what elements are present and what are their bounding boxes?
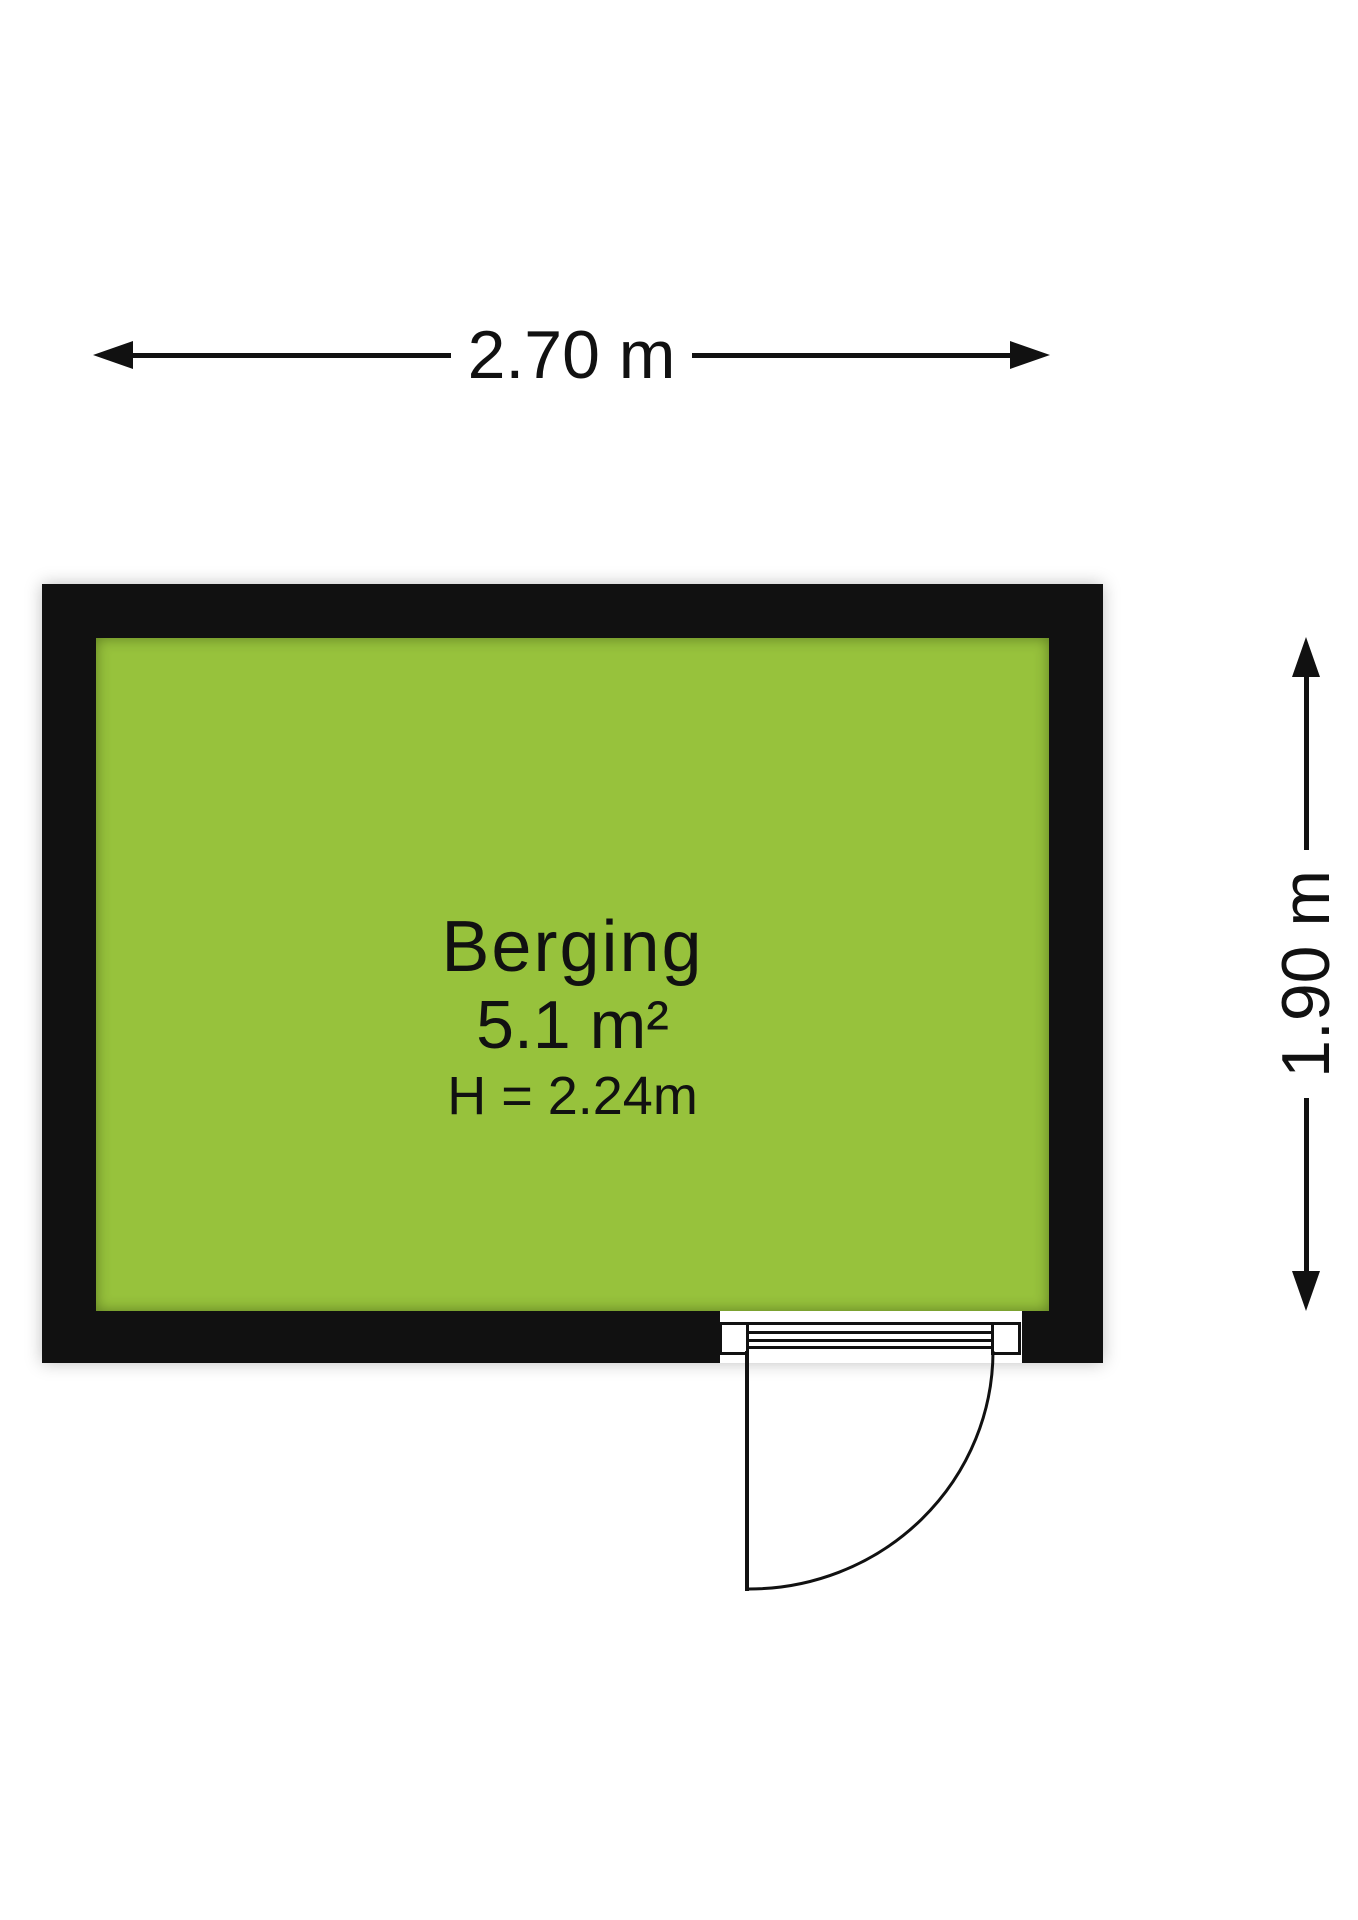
room-area: 5.1 m²	[96, 991, 1049, 1059]
door-threshold-line	[748, 1331, 994, 1334]
dimension-line-right	[692, 353, 1010, 358]
dimension-line-left	[133, 353, 451, 358]
door-threshold-line	[748, 1339, 994, 1342]
floorplan-canvas: 2.70 m Berging 5.1 m² H = 2.24m 1.90 m	[0, 0, 1358, 1920]
dimension-line-top	[1304, 677, 1309, 850]
door-threshold	[721, 1322, 1018, 1349]
arrow-right-icon	[1010, 341, 1050, 369]
width-dimension: 2.70 m	[93, 315, 1050, 395]
arrow-down-icon	[1292, 1271, 1320, 1311]
room-ceiling-height: H = 2.24m	[96, 1069, 1049, 1123]
height-dimension: 1.90 m	[1266, 637, 1346, 1311]
width-dimension-label: 2.70 m	[451, 321, 693, 389]
height-dimension-label: 1.90 m	[1272, 850, 1340, 1098]
room-floor: Berging 5.1 m² H = 2.24m	[96, 638, 1049, 1311]
door-swing-arc	[749, 1351, 995, 1593]
room-name: Berging	[96, 911, 1049, 983]
arrow-left-icon	[93, 341, 133, 369]
arrow-up-icon	[1292, 637, 1320, 677]
dimension-line-bottom	[1304, 1098, 1309, 1271]
door-jamb-right	[991, 1322, 1021, 1355]
room-label: Berging 5.1 m² H = 2.24m	[96, 911, 1049, 1123]
